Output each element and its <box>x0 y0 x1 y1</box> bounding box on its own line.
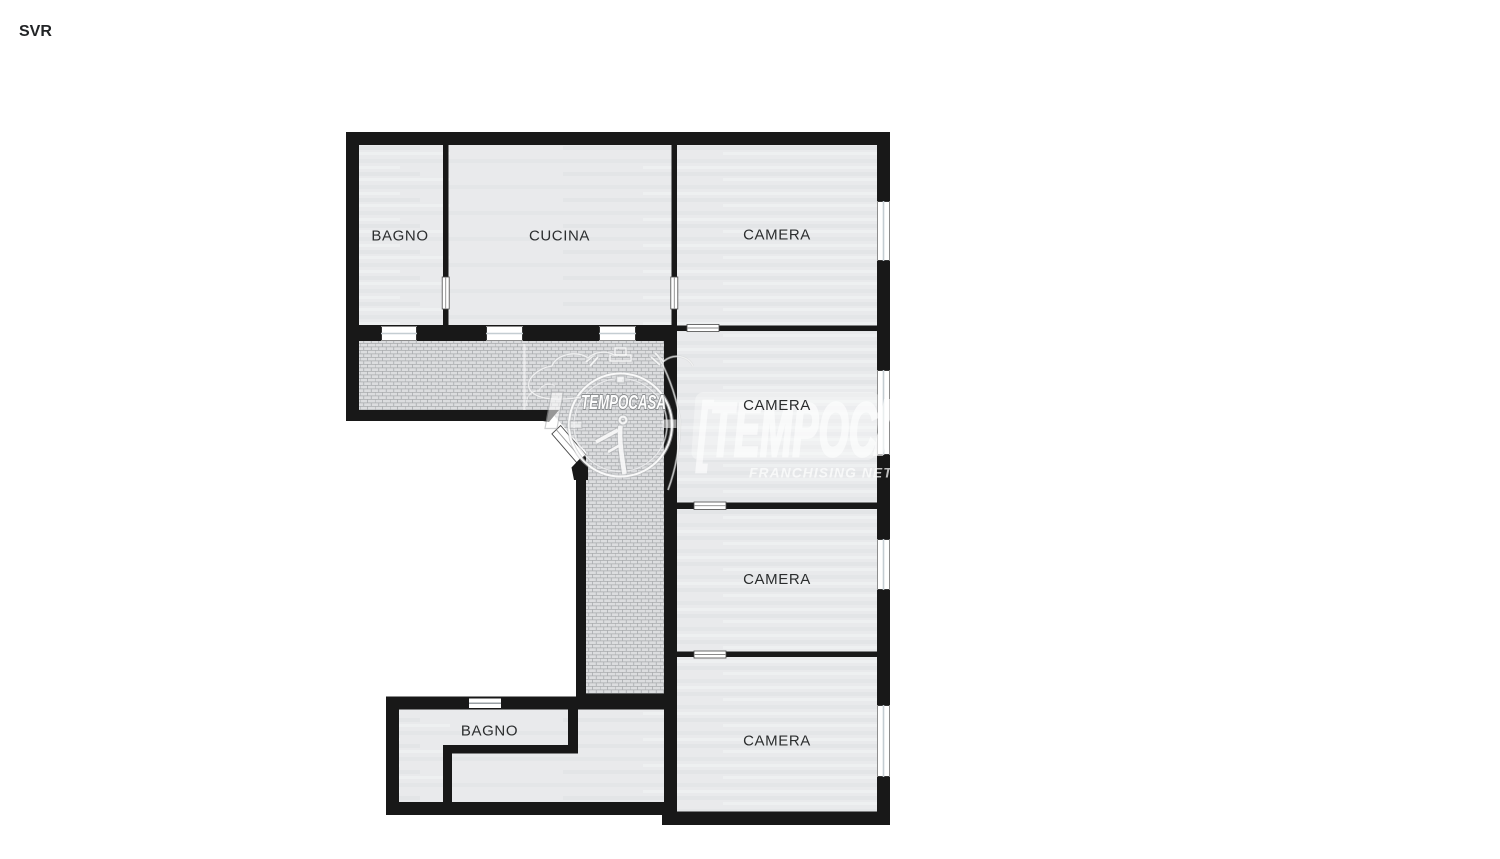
svg-text:BAGNO: BAGNO <box>461 723 518 740</box>
svg-text:CAMERA: CAMERA <box>743 733 811 750</box>
svg-text:SVR: SVR <box>19 23 52 40</box>
svg-text:TEMPOCASA: TEMPOCASA <box>581 392 666 414</box>
svg-text:BAGNO: BAGNO <box>371 228 428 245</box>
svg-text:FRANCHISING NETWORK: FRANCHISING NETWORK <box>749 466 941 481</box>
svg-text:CAMERA: CAMERA <box>743 397 811 414</box>
svg-text:CUCINA: CUCINA <box>529 228 590 245</box>
svg-text:CAMERA: CAMERA <box>743 571 811 588</box>
svg-text:CAMERA: CAMERA <box>743 227 811 244</box>
